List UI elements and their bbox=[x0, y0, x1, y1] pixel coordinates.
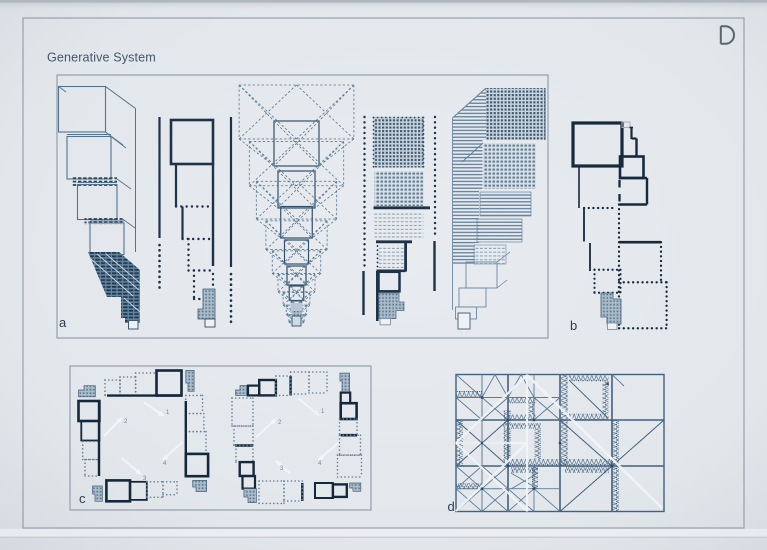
svg-text:b: b bbox=[570, 318, 577, 333]
svg-text:Generative System: Generative System bbox=[47, 51, 156, 65]
svg-text:d: d bbox=[448, 499, 455, 514]
svg-text:c: c bbox=[79, 491, 86, 506]
svg-text:a: a bbox=[59, 315, 67, 330]
